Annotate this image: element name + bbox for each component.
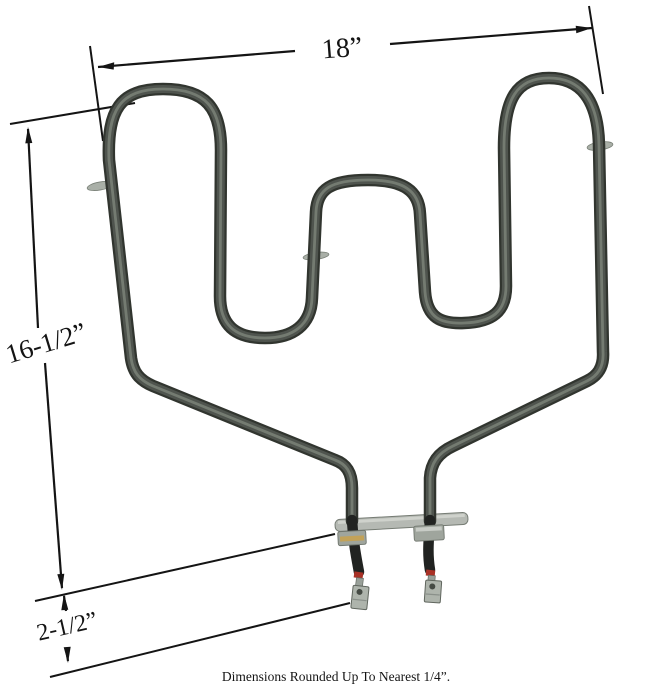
height-extension-bottom (35, 534, 335, 601)
arrow-right-icon (576, 26, 592, 33)
height-dim-line-upper (28, 129, 38, 328)
terminal-neck-left (356, 578, 364, 587)
rounding-footnote: Dimensions Rounded Up To Nearest 1/4”. (222, 669, 450, 684)
element-tube-outline (109, 78, 603, 521)
spade-terminal-right (424, 580, 441, 603)
width-witness-right (589, 6, 603, 94)
height-dim-line-lower (45, 363, 62, 588)
arrow-down-icon (57, 574, 64, 590)
terminal-left (351, 571, 369, 609)
terminal-right (424, 570, 441, 603)
width-label: 18” (321, 31, 364, 65)
mounting-nut-right (414, 525, 445, 542)
heating-element (87, 78, 614, 610)
spade-terminal-left (351, 585, 369, 610)
element-tube-highlight (109, 78, 603, 521)
product-dimension-diagram: 18” 16-1/2” 2-1/2” Dimensions Rounded Up… (0, 0, 659, 700)
terminal-offset-label: 2-1/2” (34, 607, 100, 646)
width-witness-left (90, 46, 103, 141)
width-dim-line-left (98, 51, 295, 67)
width-dimension (90, 6, 603, 141)
height-label: 16-1/2” (2, 317, 90, 370)
width-dim-line-right (390, 28, 592, 44)
terminal-offset-dimension (50, 596, 350, 677)
spacer-clips (87, 140, 614, 261)
element-tube-body (109, 78, 603, 521)
mounting-nut-left (338, 530, 367, 545)
bake-element-diagram-svg: 18” 16-1/2” 2-1/2” Dimensions Rounded Up… (0, 0, 659, 700)
